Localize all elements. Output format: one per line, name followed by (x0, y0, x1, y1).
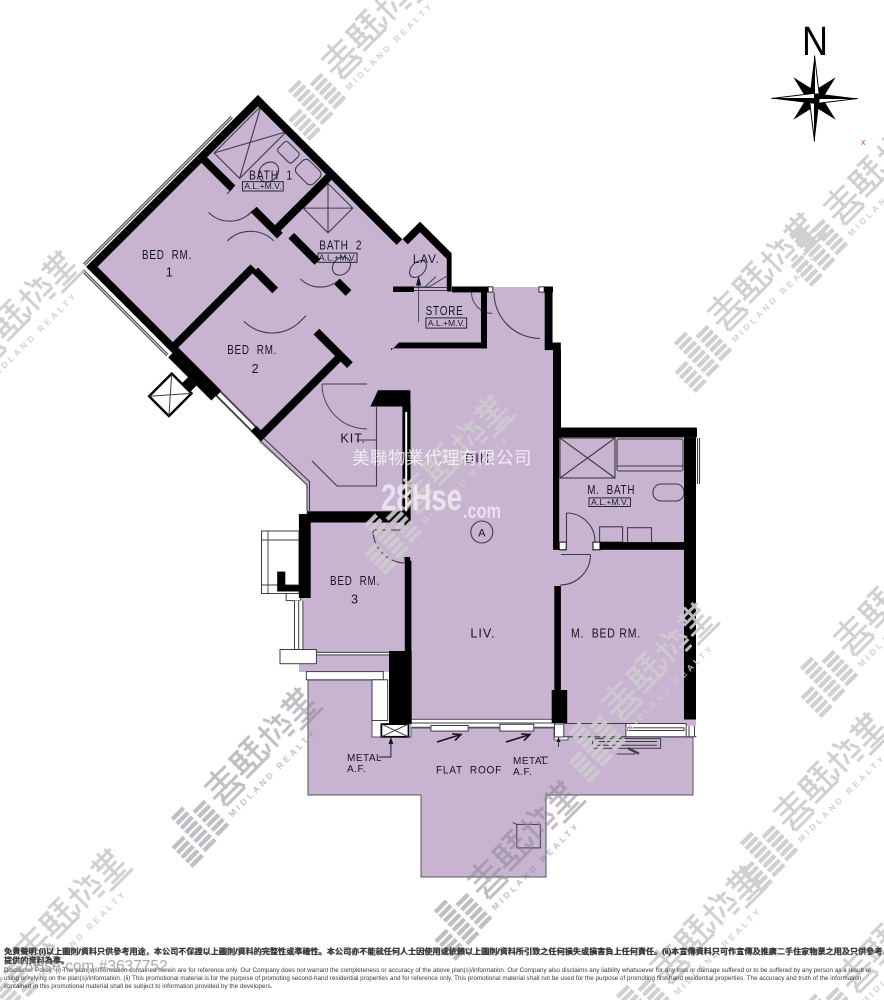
svg-text:KIT.: KIT. (340, 432, 366, 446)
svg-text:A.F.: A.F. (513, 767, 532, 778)
svg-text:METAL: METAL (513, 756, 548, 767)
svg-text:BATH 2: BATH 2 (319, 239, 362, 253)
svg-text:BED RM.: BED RM. (330, 574, 380, 588)
svg-text:A: A (478, 528, 486, 540)
svg-text:BED RM.: BED RM. (227, 343, 277, 357)
svg-text:LAV.: LAV. (413, 254, 440, 266)
svg-text:STORE: STORE (426, 303, 464, 318)
svg-text:x: x (861, 137, 866, 147)
svg-text:M. BATH: M. BATH (587, 483, 635, 497)
svg-text:A.F.: A.F. (347, 764, 366, 775)
svg-text:FLAT ROOF: FLAT ROOF (436, 765, 502, 777)
svg-text:1: 1 (166, 265, 174, 279)
svg-text:M. BED RM.: M. BED RM. (571, 627, 641, 641)
svg-text:2: 2 (252, 362, 260, 376)
svg-text:A.L.+M.V.: A.L.+M.V. (428, 318, 465, 328)
svg-text:N: N (802, 18, 828, 64)
svg-text:METAL: METAL (347, 753, 382, 764)
svg-text:3: 3 (351, 593, 359, 607)
svg-text:A.L.+M.V.: A.L.+M.V. (591, 497, 628, 507)
svg-text:LIV.: LIV. (470, 626, 495, 640)
svg-text:.com: .com (463, 500, 501, 523)
svg-text:A.L.+M.V.: A.L.+M.V. (244, 181, 281, 191)
svg-text:A.L.+M.V.: A.L.+M.V. (319, 253, 356, 263)
svg-text:BED RM.: BED RM. (142, 248, 192, 262)
svg-text:美聯物業代理有限公司: 美聯物業代理有限公司 (352, 448, 532, 468)
svg-text:28Hse: 28Hse (381, 477, 462, 518)
